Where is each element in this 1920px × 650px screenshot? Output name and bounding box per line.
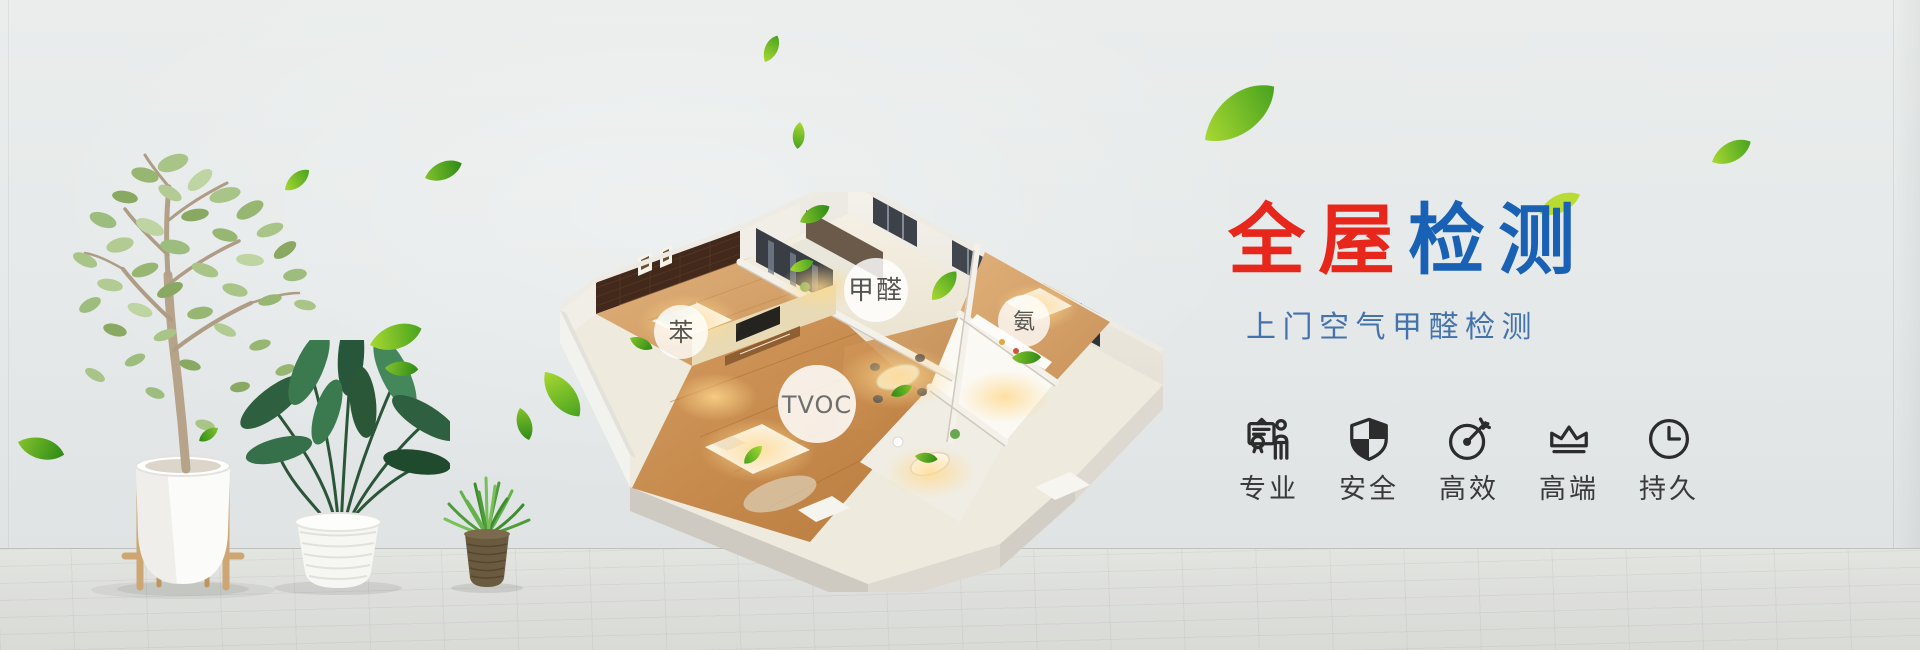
bubble-ammonia-label: 氨: [1013, 310, 1035, 335]
bubble-ammonia: 氨: [998, 295, 1050, 347]
feature-label: 高端: [1539, 467, 1599, 506]
page-title: 全屋检测: [1228, 203, 1648, 280]
feature-label: 安全: [1339, 467, 1399, 506]
leafy-plant: [235, 340, 450, 595]
feature-item-lasting: 持久: [1619, 416, 1719, 506]
feature-label: 持久: [1639, 467, 1699, 506]
feature-item-professional: 专业: [1219, 416, 1319, 506]
clock-icon: [1646, 416, 1692, 462]
bubble-benzene-label: 苯: [668, 318, 693, 347]
target-dart-icon: [1446, 416, 1492, 462]
bubble-formaldehyde-label: 甲醛: [848, 276, 904, 306]
bubble-formaldehyde: 甲醛: [844, 258, 908, 322]
features-row: 专业 安全 高效 高端: [1219, 416, 1719, 506]
bubble-tvoc-label: TVOC: [781, 391, 852, 419]
title-red: 全屋: [1228, 197, 1408, 286]
subtitle: 上门空气甲醛检测: [1246, 302, 1538, 346]
feature-item-efficient: 高效: [1419, 416, 1519, 506]
house-cutaway-model: 苯 甲醛 氨 TVOC: [500, 192, 1180, 592]
crown-icon: [1546, 416, 1592, 462]
bubble-tvoc: TVOC: [778, 365, 856, 443]
title-blue: 检测: [1408, 197, 1588, 286]
feature-item-safe: 安全: [1319, 416, 1419, 506]
leafy-plant-leaves: [235, 340, 450, 479]
shield-icon: [1346, 416, 1392, 462]
feature-item-highend: 高端: [1519, 416, 1619, 506]
hero-banner: 苯 甲醛 氨 TVOC: [0, 0, 1920, 650]
headline: 全屋检测: [1228, 203, 1648, 280]
certificate-person-icon: [1246, 416, 1292, 462]
feature-label: 专业: [1239, 467, 1299, 506]
feature-label: 高效: [1439, 467, 1499, 506]
bubble-benzene: 苯: [654, 305, 708, 359]
